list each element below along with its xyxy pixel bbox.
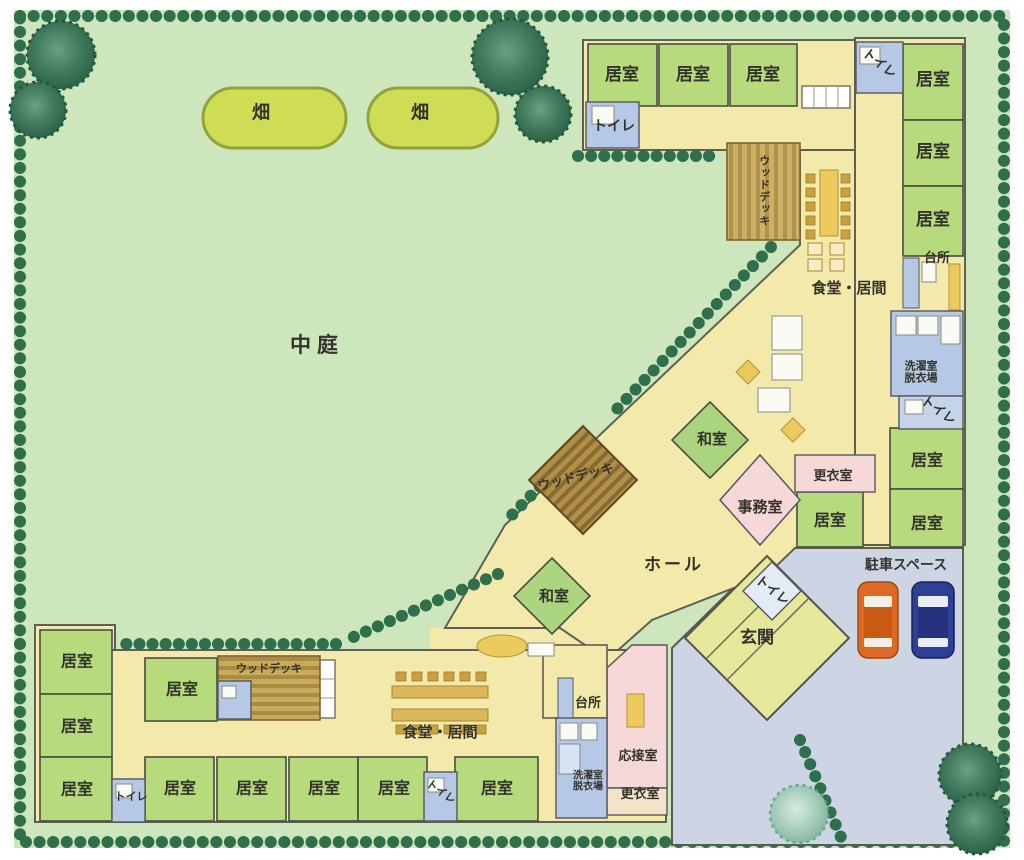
room-label: 居室 xyxy=(916,144,950,162)
toilet-label: トイレ xyxy=(593,120,635,135)
office-label: 事務室 xyxy=(737,500,782,516)
reception-table xyxy=(627,694,644,727)
field-label: 畑 xyxy=(411,105,429,124)
room-label: 居室 xyxy=(166,682,198,699)
laundry-label-line1: 洗濯室 xyxy=(905,360,938,372)
room-label: 居室 xyxy=(61,782,93,799)
japanese-room-label: 和室 xyxy=(697,432,727,448)
wood-deck-label: ウッドデッキ xyxy=(236,663,302,675)
laundry-label-line2: 脱衣場 xyxy=(573,782,603,793)
courtyard-label: 中庭 xyxy=(290,334,344,356)
sofa xyxy=(772,354,802,380)
tree xyxy=(515,86,571,142)
dining-table xyxy=(392,686,488,698)
room-label: 居室 xyxy=(308,781,340,798)
hall-label: ホール xyxy=(644,557,704,575)
sofa xyxy=(758,388,790,412)
room-label: 居室 xyxy=(916,212,950,230)
laundry-label: 洗濯室 脱衣場 xyxy=(573,772,603,793)
room-label: 居室 xyxy=(481,781,513,798)
room-label: 居室 xyxy=(236,781,268,798)
floor-plan: 畑 畑 中庭 居室 居室 居室 トイレ トイレ 居室 居室 居室 台所 食堂・居… xyxy=(0,0,1024,860)
room-label: 居室 xyxy=(378,781,410,798)
tree xyxy=(947,794,1007,854)
dining-table xyxy=(392,709,488,721)
entrance-label: 玄関 xyxy=(740,630,774,648)
reception-room-label: 応接室 xyxy=(618,750,657,764)
room-label: 居室 xyxy=(916,72,950,90)
japanese-room-label: 和室 xyxy=(539,589,569,605)
oval-table xyxy=(477,635,527,657)
laundry-label-line1: 洗濯室 xyxy=(573,772,603,783)
wood-deck-label: ウッドデッキ xyxy=(758,155,770,227)
kitchen-label: 台所 xyxy=(924,252,950,266)
kitchen-label: 台所 xyxy=(575,697,601,711)
vegetable-field xyxy=(368,88,498,148)
room-label: 居室 xyxy=(61,654,93,671)
dining-living-label: 食堂・居間 xyxy=(402,725,477,741)
changing-room-label: 更衣室 xyxy=(620,788,659,802)
laundry-label: 洗濯室 脱衣場 xyxy=(905,360,938,383)
room-label: 居室 xyxy=(746,67,780,85)
sofa xyxy=(772,316,802,350)
tree xyxy=(472,19,548,95)
car-icon-orange xyxy=(858,582,898,658)
tree xyxy=(27,21,95,89)
room-label: 居室 xyxy=(164,781,196,798)
tree xyxy=(10,82,66,138)
room-label: 居室 xyxy=(814,513,846,530)
room-label: 居室 xyxy=(911,453,943,470)
kitchen-counter xyxy=(558,678,573,718)
room-label: 居室 xyxy=(911,516,943,533)
room-label: 居室 xyxy=(605,67,639,85)
laundry-label-line2: 脱衣場 xyxy=(905,372,938,384)
kitchen-counter xyxy=(903,258,919,308)
sofa xyxy=(528,643,554,656)
parking-label: 駐車スペース xyxy=(865,559,947,574)
toilet-label: トイレ xyxy=(115,791,148,803)
car-icon-blue xyxy=(912,582,954,658)
room-label: 居室 xyxy=(676,67,710,85)
dining-table xyxy=(820,170,838,236)
room-label: 居室 xyxy=(61,719,93,736)
site-drawing xyxy=(0,0,1024,860)
dining-living-label: 食堂・居間 xyxy=(811,281,886,297)
vegetable-field xyxy=(203,88,346,148)
kitchen-unit xyxy=(949,264,960,310)
changing-room-label: 更衣室 xyxy=(813,470,852,484)
field-label: 畑 xyxy=(252,105,270,124)
tree xyxy=(770,785,828,843)
